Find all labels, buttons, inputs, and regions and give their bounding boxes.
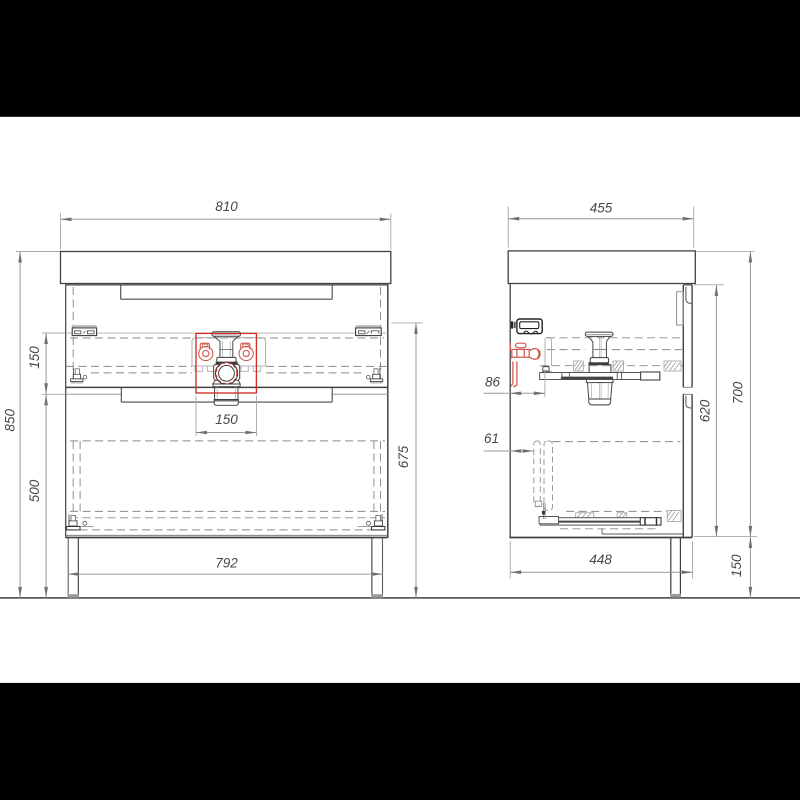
svg-text:500: 500 bbox=[27, 479, 42, 502]
svg-text:850: 850 bbox=[3, 409, 18, 432]
svg-text:675: 675 bbox=[396, 445, 411, 468]
svg-text:150: 150 bbox=[729, 554, 744, 577]
svg-text:86: 86 bbox=[485, 374, 501, 389]
svg-text:150: 150 bbox=[27, 346, 42, 369]
svg-text:61: 61 bbox=[484, 431, 499, 446]
svg-text:448: 448 bbox=[589, 552, 612, 567]
svg-text:810: 810 bbox=[215, 199, 238, 214]
svg-text:700: 700 bbox=[731, 381, 746, 404]
svg-text:455: 455 bbox=[590, 201, 613, 216]
svg-text:792: 792 bbox=[215, 556, 238, 571]
svg-text:150: 150 bbox=[215, 412, 238, 427]
svg-text:620: 620 bbox=[697, 399, 712, 422]
